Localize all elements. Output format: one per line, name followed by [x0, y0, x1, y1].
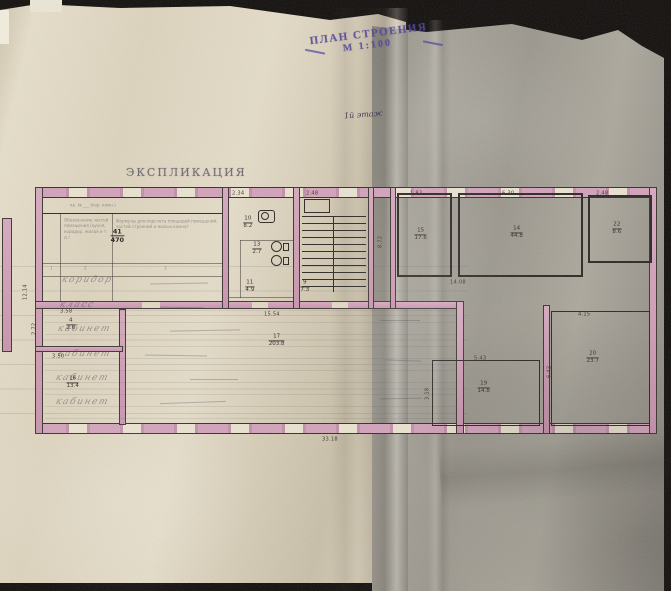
room-area: 4.9 — [245, 286, 254, 292]
table-col-number: 1 — [50, 266, 53, 272]
room-area: 23.7 — [587, 357, 599, 363]
wall-left — [35, 187, 43, 434]
room-area: 2.7 — [252, 248, 261, 254]
room-label: 42.6 — [66, 318, 75, 332]
dimension-label: 3.58 — [60, 308, 72, 314]
dimension-label: 3.18 — [424, 388, 430, 400]
wall-vertical — [222, 187, 229, 309]
dimension-label: 8.72 — [377, 236, 383, 248]
pencil-scribble — [380, 320, 420, 321]
summary-fraction-top: 41 — [111, 228, 124, 236]
dimension-label: 2.48 — [306, 190, 318, 196]
door-gap — [252, 302, 268, 308]
staircase-treads — [302, 216, 366, 292]
sink-icon — [271, 255, 282, 266]
room-area: 8.2 — [243, 222, 252, 228]
pencil-scribble — [190, 379, 238, 380]
partition-line — [229, 297, 293, 298]
room-label: 132.7 — [252, 242, 261, 256]
room-area: 203.8 — [269, 340, 285, 346]
sink-tank-icon — [283, 257, 289, 265]
room-label: 1444.8 — [511, 226, 523, 240]
room-label: 2023.7 — [587, 351, 599, 365]
table-line — [60, 213, 61, 301]
room-label: 114.9 — [245, 280, 254, 294]
table-line — [43, 213, 222, 214]
floor-plan-photo: ПЛАН СТРОЕНИЯ М 1:100 1й этаж ЭКСПЛИКАЦИ… — [0, 0, 671, 591]
table-header-note: кв. № ___ (кор. комн.) — [70, 203, 220, 209]
dimension-label: 6.30 — [502, 190, 514, 196]
table-col-number: 2 — [84, 266, 87, 272]
table-line — [43, 263, 222, 264]
room-area: 8.6 — [612, 228, 621, 234]
staircase-center-line — [333, 216, 334, 292]
wall-vertical — [293, 187, 300, 309]
door-gap — [332, 302, 348, 308]
wall-vertical — [390, 187, 396, 309]
room-area: 2.6 — [66, 324, 75, 330]
dimension-label: 3.50 — [52, 353, 64, 359]
room-label: 17203.8 — [269, 334, 285, 348]
room-area: 14.8 — [478, 387, 490, 393]
door-gap — [142, 302, 160, 308]
staircase-landing — [304, 199, 330, 213]
dimension-label: 2.34 — [232, 190, 244, 196]
wall-vertical — [368, 187, 374, 309]
dimension-label: 1.82 — [410, 190, 422, 196]
dimension-label: 2.72 — [31, 323, 37, 335]
paper-tab — [30, 0, 62, 12]
room-label: 228.6 — [612, 222, 621, 236]
sink-tank-icon — [283, 243, 289, 251]
handwritten-room-name: коридор — [61, 275, 114, 285]
dimension-label: 4.15 — [578, 311, 590, 317]
table-col-parts: Обозначение частей помещения (кухня, кор… — [64, 218, 112, 241]
room-area: 17.6 — [415, 234, 427, 240]
table-col-number: 3 — [164, 266, 167, 272]
wall-middle — [35, 301, 463, 309]
room-area: 44.8 — [511, 232, 523, 238]
dimension-label: 2.48 — [596, 190, 608, 196]
dimension-label: 6.42 — [546, 366, 552, 378]
room-outline-20 — [551, 311, 650, 426]
dimension-label: 5.43 — [474, 355, 486, 361]
room-label: 97.3 — [300, 280, 309, 294]
dimension-label: 12.14 — [22, 284, 28, 300]
table-col-formulas: Формулы для подсчета площадей помещений,… — [116, 219, 218, 230]
paper-edge-sliver — [0, 10, 9, 44]
partition-line — [240, 240, 293, 241]
room-area: 13.4 — [67, 382, 79, 388]
room-area: 7.3 — [300, 286, 309, 292]
summary-fraction: 41 470 — [111, 228, 124, 244]
explication-title: ЭКСПЛИКАЦИЯ — [126, 166, 247, 179]
dimension-label: 14.08 — [450, 279, 466, 285]
hall-hatch — [45, 310, 455, 422]
adjacent-sheet-edge — [2, 218, 12, 352]
table-line — [112, 213, 113, 301]
dimension-label: 33.18 — [322, 436, 338, 442]
room-label: 1613.4 — [67, 376, 79, 390]
summary-fraction-bottom: 470 — [111, 236, 124, 243]
room-label: 1914.8 — [478, 381, 490, 395]
room-label: 1517.6 — [415, 228, 427, 242]
partition-line — [240, 240, 241, 298]
toilet-bowl-icon — [261, 212, 269, 220]
room-label: 108.2 — [243, 216, 252, 230]
dimension-label: 15.54 — [264, 311, 280, 317]
sink-icon — [271, 241, 282, 252]
